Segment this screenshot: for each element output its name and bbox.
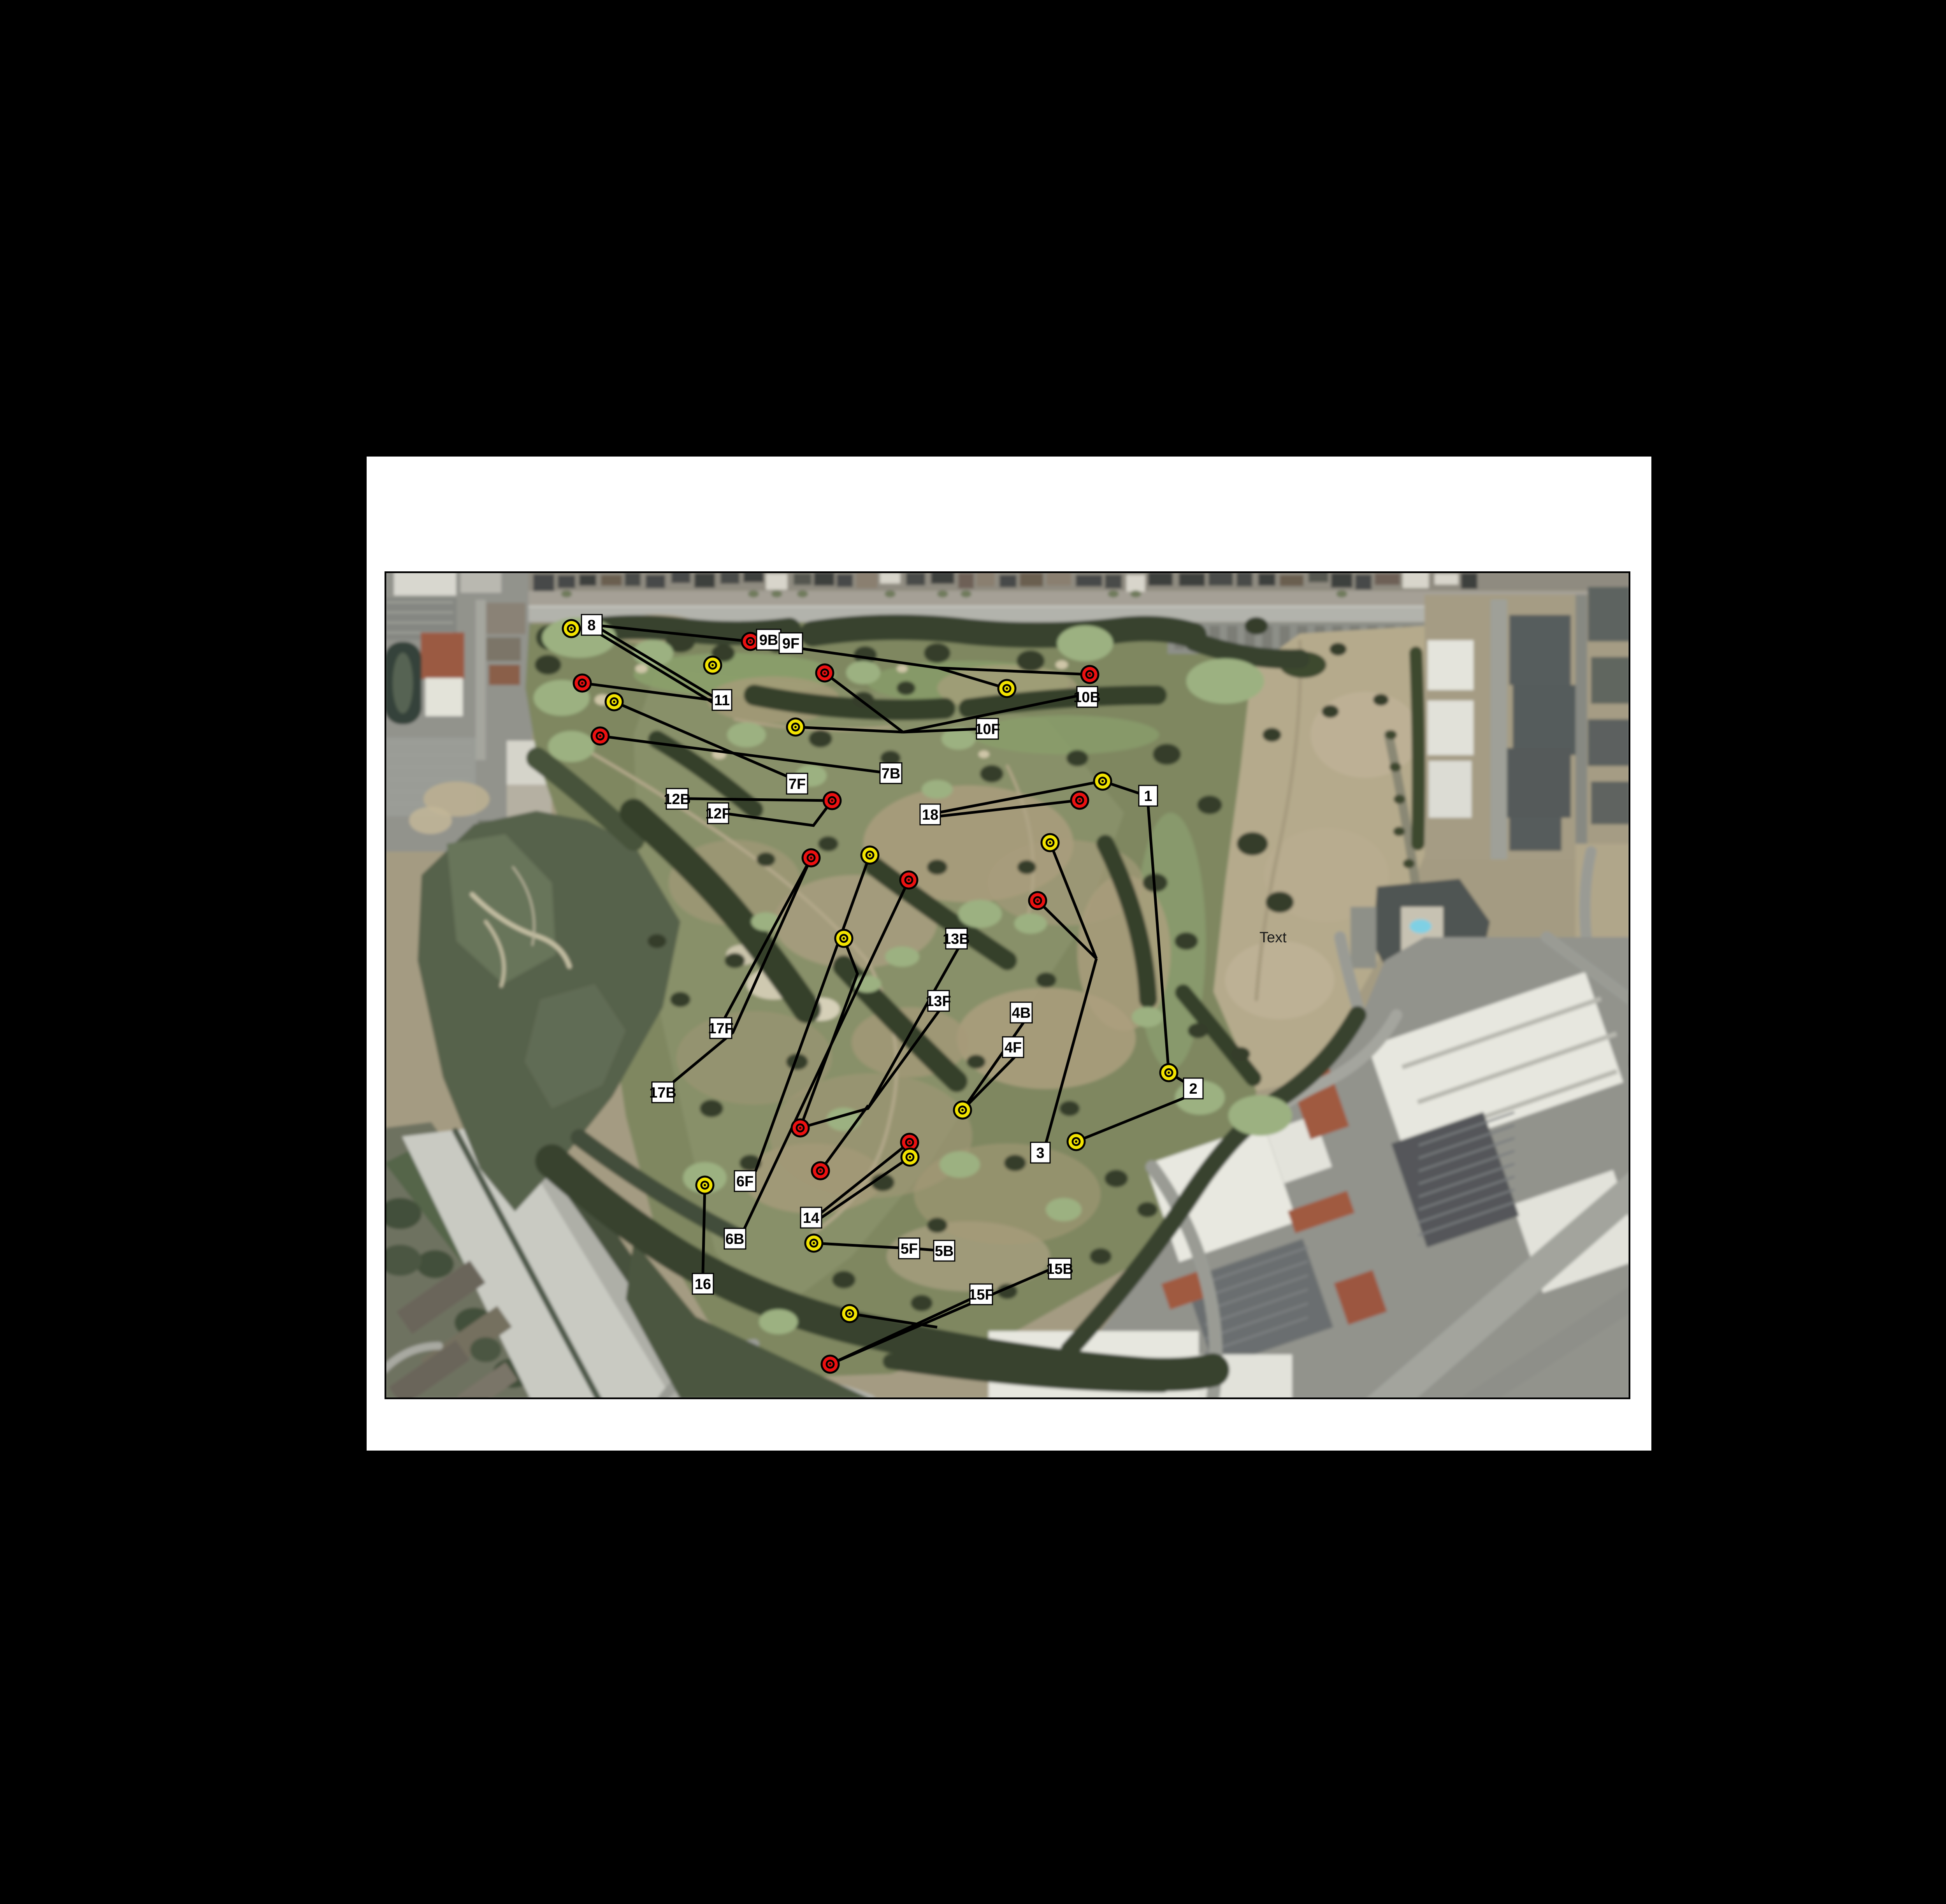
svg-text:7B: 7B (882, 766, 901, 782)
svg-text:10B: 10B (1073, 689, 1101, 706)
svg-text:10F: 10F (975, 721, 1000, 738)
svg-text:1: 1 (1144, 788, 1152, 804)
svg-text:9B: 9B (759, 632, 778, 648)
svg-text:2: 2 (1189, 1081, 1197, 1097)
svg-text:17F: 17F (708, 1021, 733, 1037)
svg-text:12F: 12F (705, 806, 731, 822)
svg-text:16: 16 (695, 1276, 711, 1293)
svg-text:13B: 13B (943, 931, 970, 947)
svg-text:17B: 17B (649, 1085, 676, 1101)
svg-text:4F: 4F (1005, 1040, 1022, 1056)
svg-text:15F: 15F (968, 1287, 994, 1303)
svg-text:3: 3 (1036, 1145, 1044, 1161)
svg-text:9F: 9F (782, 636, 799, 652)
svg-text:13F: 13F (926, 993, 951, 1010)
svg-text:8: 8 (587, 617, 595, 634)
svg-text:5B: 5B (935, 1243, 954, 1259)
svg-text:6F: 6F (736, 1173, 753, 1190)
svg-text:18: 18 (922, 807, 938, 823)
svg-text:Text: Text (1259, 929, 1287, 946)
svg-text:11: 11 (714, 692, 730, 709)
svg-text:15B: 15B (1046, 1261, 1073, 1277)
svg-text:7F: 7F (789, 776, 806, 792)
svg-text:4B: 4B (1012, 1005, 1031, 1021)
svg-text:6B: 6B (725, 1231, 745, 1247)
svg-text:12B: 12B (664, 791, 691, 808)
svg-text:14: 14 (803, 1210, 819, 1226)
svg-text:5F: 5F (901, 1241, 918, 1257)
